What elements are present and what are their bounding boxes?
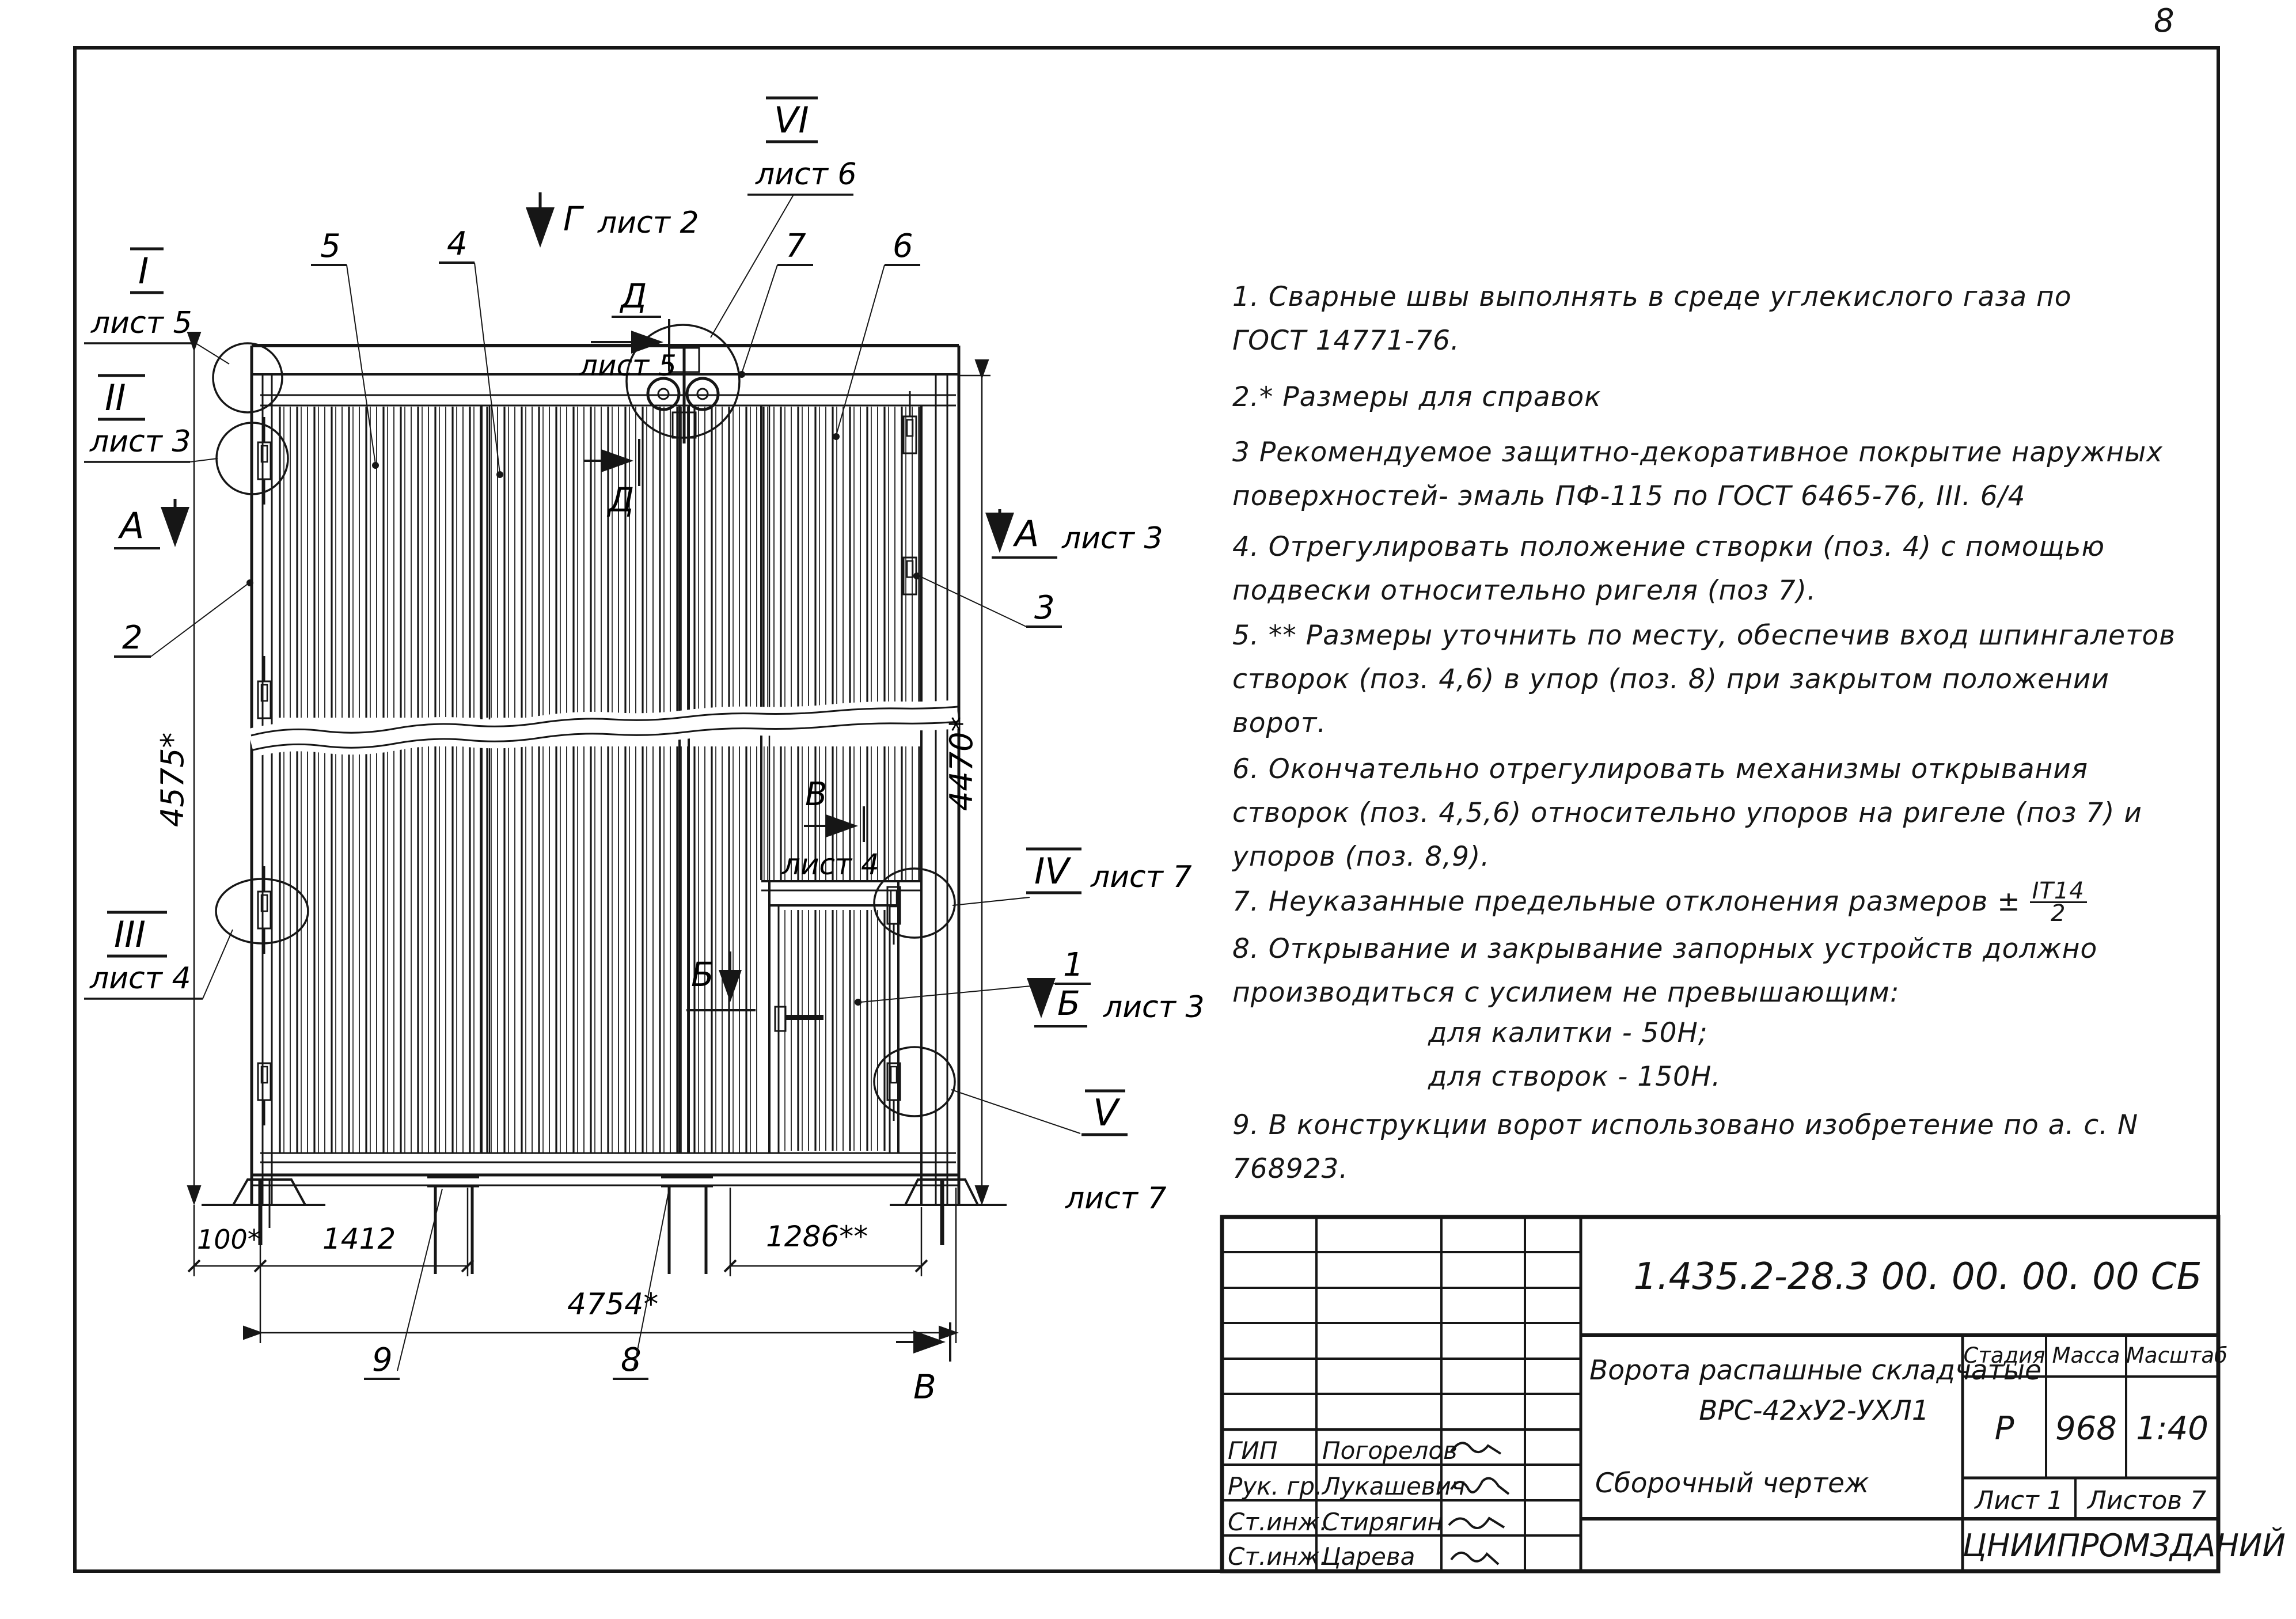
signer-name: Погорелов xyxy=(1322,1436,1458,1465)
dim-total: 4754* xyxy=(567,1287,658,1322)
svg-text:А: А xyxy=(117,505,144,547)
panel-wicket xyxy=(783,910,887,1151)
svg-text:лист 3: лист 3 xyxy=(1103,990,1205,1025)
signer-name: Лукашевич xyxy=(1322,1472,1466,1500)
note-6: 6. Окончательно отрегулировать механизмы… xyxy=(1232,748,2171,879)
note-7-fraction: IT142 xyxy=(2030,881,2087,924)
drawing-sheet: 8 xyxy=(0,0,2296,1619)
panel-upper xyxy=(275,407,920,718)
note-2: 2.* Размеры для справок xyxy=(1232,376,2165,419)
svg-text:III: III xyxy=(114,913,146,956)
note-8-sub-1: для калитки - 50Н; xyxy=(1428,1017,1708,1049)
note-4: 4. Отрегулировать положение створки (поз… xyxy=(1232,525,2165,613)
pos-8: 8 xyxy=(613,1189,669,1379)
note-3: 3 Рекомендуемое защитно-декоративное пок… xyxy=(1232,431,2188,518)
svg-text:Г: Г xyxy=(563,199,585,238)
organization-name: ЦНИИПРОМЗДАНИЙ xyxy=(1963,1527,2218,1564)
svg-text:лист 3: лист 3 xyxy=(1061,521,1163,556)
signature-scribble xyxy=(1451,1553,1498,1564)
gate-elevation xyxy=(202,325,1007,1274)
dim-right-height: 4470* xyxy=(943,716,980,811)
svg-text:Б: Б xyxy=(691,955,714,994)
svg-text:Б: Б xyxy=(1057,984,1080,1023)
support-left xyxy=(427,1177,479,1274)
view-B-right: Б лист 3 xyxy=(1034,978,1205,1026)
view-A-right: А лист 3 xyxy=(992,509,1163,558)
detail-label-I: I лист 5 xyxy=(84,249,229,364)
dim-wicket: 1286** xyxy=(766,1220,868,1253)
mass-value: 968 xyxy=(2046,1410,2126,1447)
svg-text:лист 7: лист 7 xyxy=(1090,860,1192,894)
detail-label-III: III лист 4 xyxy=(84,912,233,999)
signature-scribble xyxy=(1451,1443,1501,1454)
pos-2: 2 xyxy=(114,579,253,657)
svg-text:Д: Д xyxy=(606,480,634,520)
fraction-denominator: 2 xyxy=(2030,903,2087,924)
svg-text:7: 7 xyxy=(785,228,806,265)
signer-name: Царева xyxy=(1322,1542,1415,1571)
title-line-1: Ворота распашные складчатые xyxy=(1589,1355,1958,1386)
svg-text:6: 6 xyxy=(893,228,913,265)
signer-role: Рук. гр. xyxy=(1228,1472,1322,1500)
svg-text:1: 1 xyxy=(1063,946,1084,984)
latch-left-bottom xyxy=(258,1063,271,1125)
note-5: 5. ** Размеры уточнить по месту, обеспеч… xyxy=(1232,614,2183,745)
title-line-2: ВРС-42хУ2-УХЛ1 xyxy=(1670,1395,1958,1427)
svg-text:лист 6: лист 6 xyxy=(755,157,857,192)
dim-leaf: 1412 xyxy=(322,1222,396,1256)
pos-7: 7 xyxy=(738,228,813,378)
svg-text:IV: IV xyxy=(1034,850,1072,892)
mass-label: Масса xyxy=(2046,1343,2126,1368)
note-1: 1. Сварные швы выполнять в среде углекис… xyxy=(1232,275,2154,363)
sheets-total: Листов 7 xyxy=(2075,1486,2218,1515)
detail-label-V: V лист 7 xyxy=(951,1090,1167,1216)
note-8: 8. Открывание и закрывание запорных устр… xyxy=(1232,927,2165,1015)
document-number: 1.435.2-28.3 00. 00. 00. 00 СБ xyxy=(1630,1256,2206,1298)
svg-text:2: 2 xyxy=(122,619,143,657)
svg-text:9: 9 xyxy=(372,1341,393,1379)
svg-text:Д: Д xyxy=(619,276,647,316)
detail-label-IV: IV лист 7 xyxy=(952,849,1192,905)
scale-value: 1:40 xyxy=(2126,1410,2218,1447)
signer-role: ГИП xyxy=(1228,1436,1277,1465)
signature-scribble xyxy=(1449,1518,1504,1528)
svg-text:3: 3 xyxy=(1034,589,1055,627)
door-handle xyxy=(785,1015,823,1020)
section-V-bottom: В xyxy=(896,1322,950,1406)
bottom-rail xyxy=(252,1153,959,1185)
svg-text:5: 5 xyxy=(320,228,341,265)
svg-text:В: В xyxy=(805,776,827,813)
svg-text:В: В xyxy=(913,1367,936,1406)
note-8-sub-2: для створок - 150Н. xyxy=(1428,1061,1721,1093)
pos-9: 9 xyxy=(364,1189,442,1379)
signer-role: Ст.инж. xyxy=(1228,1542,1327,1571)
signer-name: Стирягин xyxy=(1322,1508,1443,1536)
view-A-left: А xyxy=(114,499,175,548)
detail-label-VI: VI лист 6 xyxy=(711,98,857,338)
svg-text:VI: VI xyxy=(774,99,809,141)
svg-text:лист 3: лист 3 xyxy=(89,424,191,459)
note-7: 7. Неуказанные предельные отклонения раз… xyxy=(1232,880,2223,924)
dim-left-height: 4575* xyxy=(154,733,191,827)
svg-text:V: V xyxy=(1093,1092,1121,1135)
svg-text:лист 4: лист 4 xyxy=(89,961,191,996)
detail-label-II: II лист 3 xyxy=(84,376,218,462)
stage-label: Стадия xyxy=(1963,1343,2046,1368)
note-7-text: 7. Неуказанные предельные отклонения раз… xyxy=(1232,886,2021,917)
svg-text:I: I xyxy=(138,250,149,292)
latch-left-mid xyxy=(258,656,271,718)
title-line-3: Сборочный чертеж xyxy=(1595,1468,1918,1499)
svg-text:лист 2: лист 2 xyxy=(597,206,699,240)
panel-lower-left xyxy=(275,746,759,1153)
svg-text:лист 5: лист 5 xyxy=(579,349,677,382)
svg-text:лист 7: лист 7 xyxy=(1065,1181,1167,1216)
svg-text:4: 4 xyxy=(447,225,468,263)
svg-text:лист 5: лист 5 xyxy=(90,306,192,340)
svg-text:А: А xyxy=(1012,513,1039,555)
view-G-top: Г лист 2 xyxy=(540,192,699,242)
scale-label: Масштаб xyxy=(2126,1343,2218,1368)
signer-role: Ст.инж. xyxy=(1228,1508,1327,1536)
signature-scribbles xyxy=(1449,1443,1509,1564)
stage-value: Р xyxy=(1963,1410,2046,1447)
dim-offset: 100* xyxy=(197,1224,261,1255)
svg-text:лист 4: лист 4 xyxy=(781,848,879,881)
note-9: 9. В конструкции ворот использовано изоб… xyxy=(1232,1104,2177,1191)
svg-text:II: II xyxy=(105,377,126,419)
sheet-number: Лист 1 xyxy=(1963,1486,2075,1515)
